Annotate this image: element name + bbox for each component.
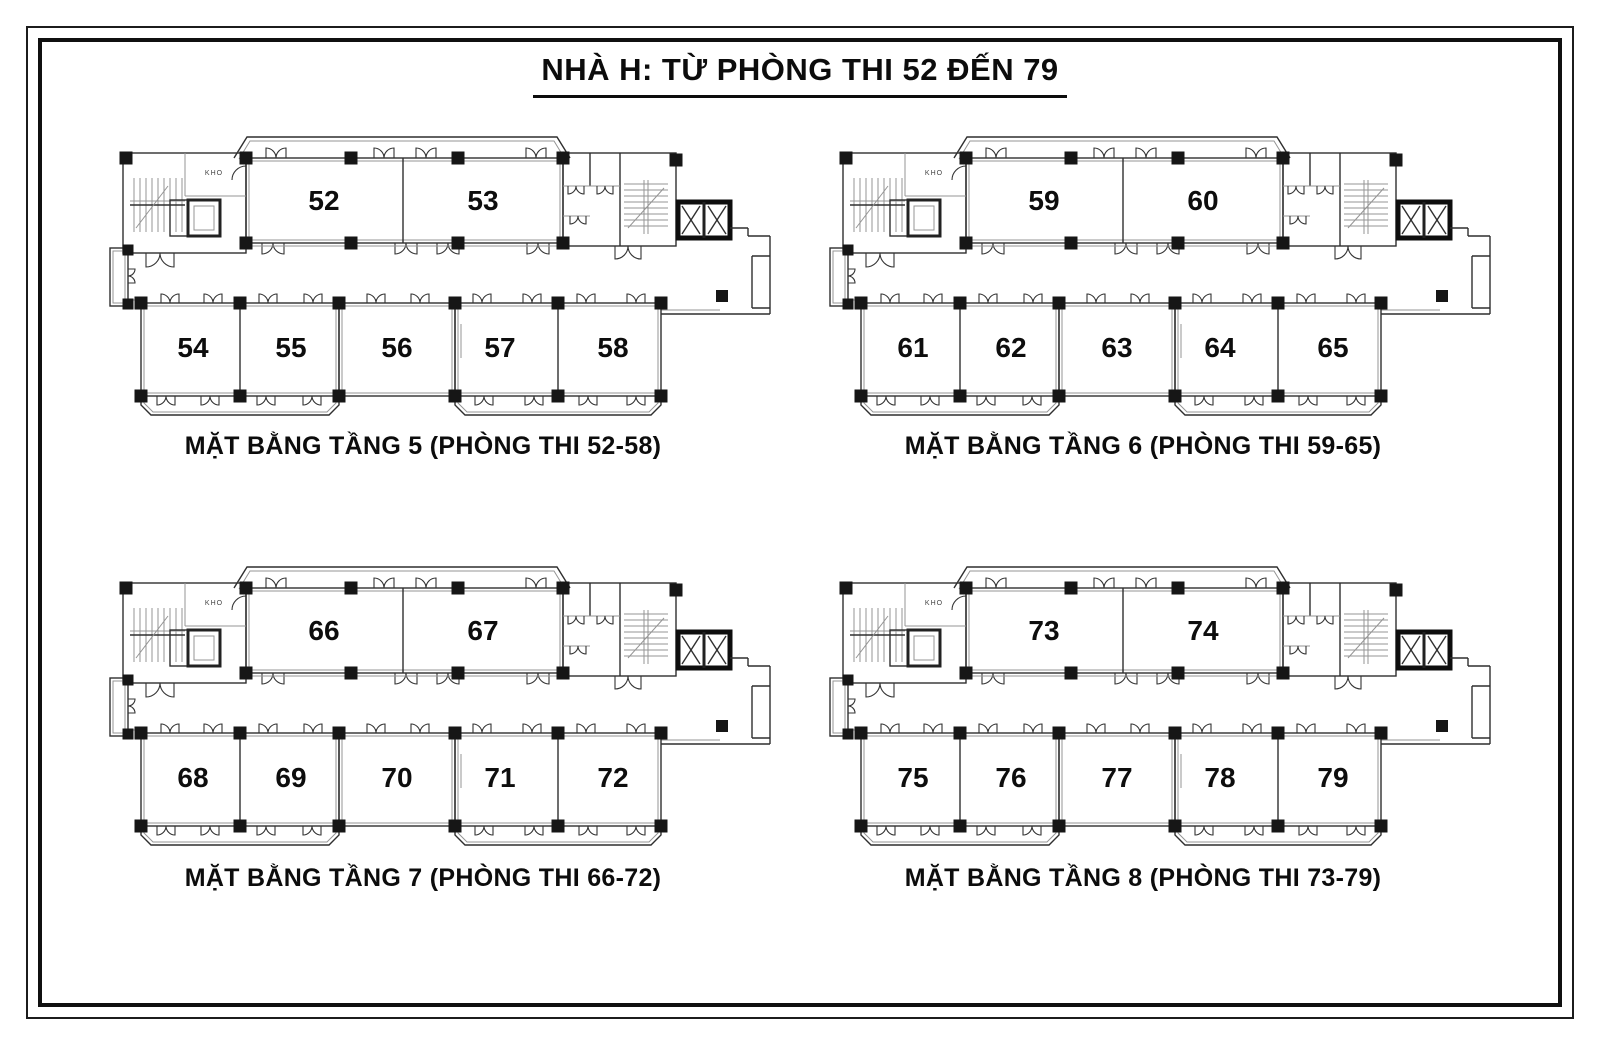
exam-room-number: 78 xyxy=(1204,762,1235,793)
left-stair-core: KHO xyxy=(843,153,966,253)
exam-room-number: 56 xyxy=(381,332,412,363)
left-stair-core: KHO xyxy=(123,153,246,253)
structural-columns xyxy=(120,152,683,403)
floor-caption-5: MẶT BẰNG TẦNG 5 (PHÒNG THI 52-58) xyxy=(128,432,718,461)
exam-room-number: 61 xyxy=(897,332,928,363)
corridor xyxy=(110,228,770,314)
exam-room-number: 53 xyxy=(467,185,498,216)
storage-room-label: KHO xyxy=(925,170,943,177)
right-service-block xyxy=(563,153,676,259)
exam-room-number: 71 xyxy=(484,762,515,793)
exam-room-number: 72 xyxy=(597,762,628,793)
left-stair-core: KHO xyxy=(843,583,966,683)
bottom-exam-rooms: 7576777879 xyxy=(861,724,1381,835)
top-exam-rooms: 5960 xyxy=(966,148,1283,254)
bottom-exam-rooms: 5455565758 xyxy=(141,294,661,405)
floor-plan-svg: 5253KHO5455565758 xyxy=(108,128,788,428)
exam-room-number: 55 xyxy=(275,332,306,363)
top-exam-rooms: 6667 xyxy=(246,578,563,684)
exam-room-number: 59 xyxy=(1028,185,1059,216)
storage-room-label: KHO xyxy=(205,600,223,607)
floor-plan-5: 5253KHO5455565758 xyxy=(108,128,788,438)
exam-room-number: 77 xyxy=(1101,762,1132,793)
corridor xyxy=(110,658,770,744)
storage-room-label: KHO xyxy=(925,600,943,607)
floor-plan-svg: 5960KHO6162636465 xyxy=(828,128,1508,428)
top-exam-rooms: 7374 xyxy=(966,578,1283,684)
elevator-shafts xyxy=(1398,632,1450,668)
corridor xyxy=(830,658,1490,744)
floor-caption-8: MẶT BẰNG TẦNG 8 (PHÒNG THI 73-79) xyxy=(848,864,1438,893)
elevator-shafts xyxy=(678,632,730,668)
top-exam-rooms: 5253 xyxy=(246,148,563,254)
exam-room-number: 62 xyxy=(995,332,1026,363)
elevator-shafts xyxy=(1398,202,1450,238)
floor-plan-6: 5960KHO6162636465 xyxy=(828,128,1508,438)
storage-room-label: KHO xyxy=(205,170,223,177)
exam-room-number: 65 xyxy=(1317,332,1348,363)
exam-room-number: 68 xyxy=(177,762,208,793)
exam-room-number: 58 xyxy=(597,332,628,363)
floor-plan-svg: 7374KHO7576777879 xyxy=(828,558,1508,858)
floor-caption-7: MẶT BẰNG TẦNG 7 (PHÒNG THI 66-72) xyxy=(128,864,718,893)
exam-room-number: 79 xyxy=(1317,762,1348,793)
exam-room-number: 57 xyxy=(484,332,515,363)
corridor xyxy=(830,228,1490,314)
right-service-block xyxy=(1283,583,1396,689)
exam-room-number: 75 xyxy=(897,762,928,793)
page-title: NHÀ H: TỪ PHÒNG THI 52 ĐẾN 79 xyxy=(533,52,1066,98)
bottom-exam-rooms: 6869707172 xyxy=(141,724,661,835)
floor-plan-8: 7374KHO7576777879 xyxy=(828,558,1508,868)
exam-room-number: 73 xyxy=(1028,615,1059,646)
exam-room-number: 69 xyxy=(275,762,306,793)
title-row: NHÀ H: TỪ PHÒNG THI 52 ĐẾN 79 xyxy=(0,52,1600,98)
exam-room-number: 66 xyxy=(308,615,339,646)
right-service-block xyxy=(563,583,676,689)
bottom-exam-rooms: 6162636465 xyxy=(861,294,1381,405)
left-stair-core: KHO xyxy=(123,583,246,683)
floor-plan-svg: 6667KHO6869707172 xyxy=(108,558,788,858)
drawing-sheet: NHÀ H: TỪ PHÒNG THI 52 ĐẾN 79 5253KHO545… xyxy=(0,0,1600,1045)
exam-room-number: 54 xyxy=(177,332,209,363)
exam-room-number: 64 xyxy=(1204,332,1236,363)
exam-room-number: 63 xyxy=(1101,332,1132,363)
exam-room-number: 60 xyxy=(1187,185,1218,216)
exam-room-number: 74 xyxy=(1187,615,1219,646)
exam-room-number: 76 xyxy=(995,762,1026,793)
right-service-block xyxy=(1283,153,1396,259)
structural-columns xyxy=(840,582,1403,833)
exam-room-number: 52 xyxy=(308,185,339,216)
structural-columns xyxy=(120,582,683,833)
structural-columns xyxy=(840,152,1403,403)
floor-plan-7: 6667KHO6869707172 xyxy=(108,558,788,868)
floor-caption-6: MẶT BẰNG TẦNG 6 (PHÒNG THI 59-65) xyxy=(848,432,1438,461)
elevator-shafts xyxy=(678,202,730,238)
exam-room-number: 70 xyxy=(381,762,412,793)
exam-room-number: 67 xyxy=(467,615,498,646)
